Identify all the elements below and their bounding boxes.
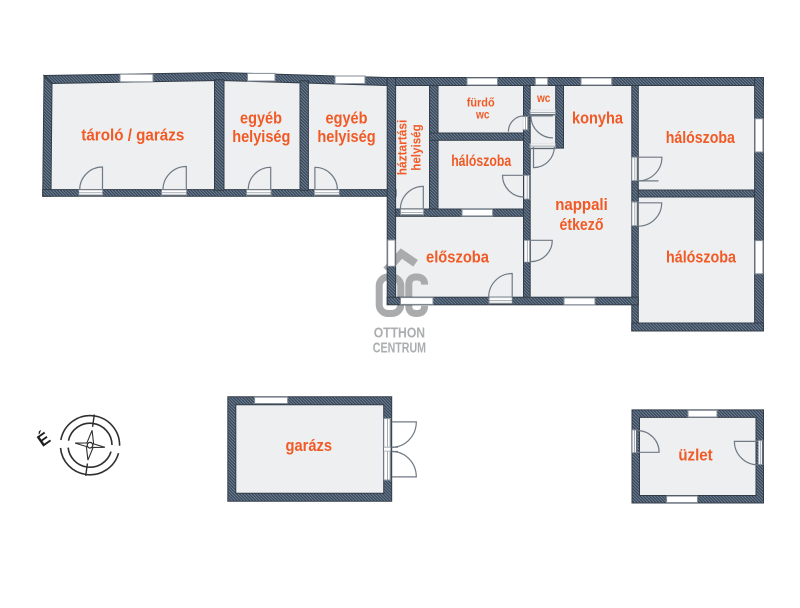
svg-text:fürdő: fürdő	[467, 98, 495, 110]
svg-text:háztartási: háztartási	[396, 120, 410, 176]
svg-text:helyiség: helyiség	[410, 124, 424, 171]
svg-text:helyiség: helyiség	[232, 128, 290, 146]
svg-text:előszoba: előszoba	[426, 249, 490, 267]
svg-text:wc: wc	[536, 91, 551, 105]
svg-text:helyiség: helyiség	[317, 128, 375, 146]
svg-text:CENTRUM: CENTRUM	[373, 340, 426, 357]
svg-text:wc: wc	[475, 110, 490, 122]
svg-text:hálószoba: hálószoba	[666, 248, 737, 266]
svg-text:üzlet: üzlet	[678, 446, 713, 464]
svg-text:konyha: konyha	[572, 109, 624, 127]
svg-text:hálószoba: hálószoba	[666, 129, 736, 147]
svg-text:tároló / garázs: tároló / garázs	[81, 127, 184, 145]
svg-text:garázs: garázs	[286, 437, 333, 455]
svg-text:étkező: étkező	[560, 216, 604, 234]
svg-text:egyéb: egyéb	[240, 109, 282, 127]
svg-text:egyéb: egyéb	[326, 109, 368, 127]
svg-text:hálószoba: hálószoba	[451, 153, 511, 170]
svg-text:nappali: nappali	[555, 196, 608, 214]
